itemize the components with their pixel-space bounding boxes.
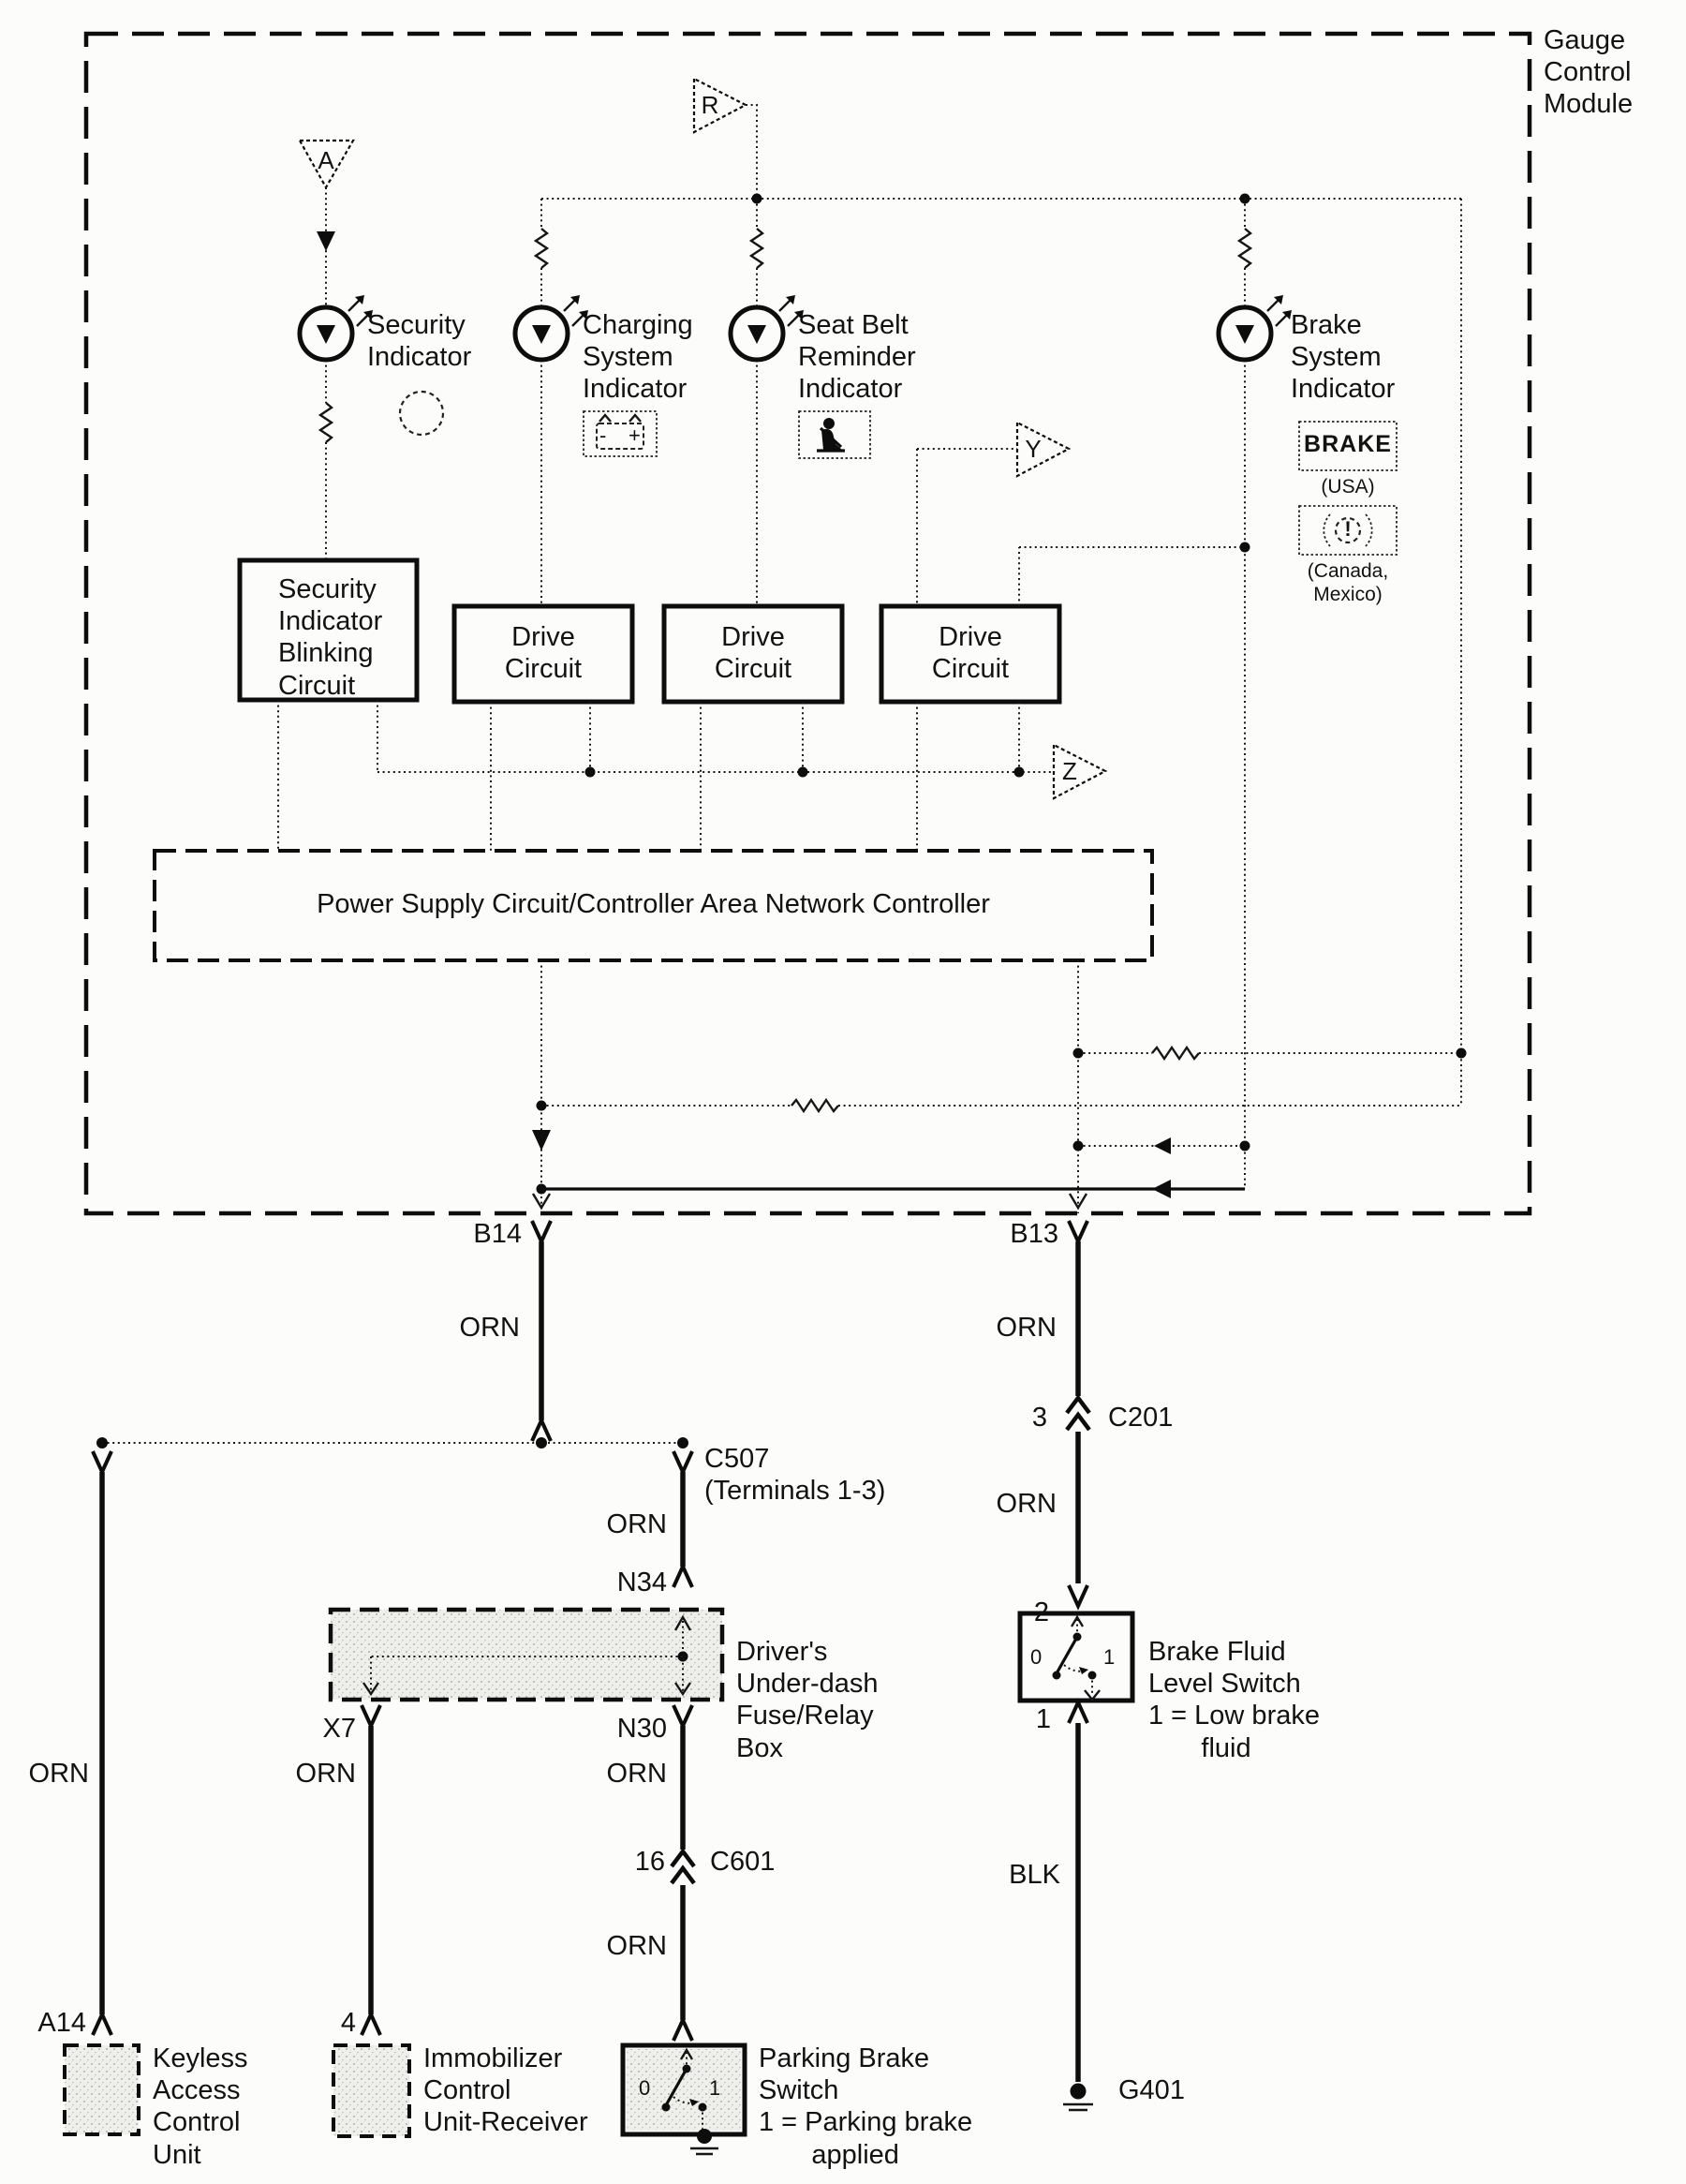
brake-box-text: BRAKE: [1299, 431, 1397, 459]
drive-circuit-2-label: Drive Circuit: [664, 621, 842, 685]
pin-1-label: 1: [991, 1703, 1051, 1735]
triangle-y-label: Y: [1022, 435, 1044, 464]
wire-color-orn: ORN: [417, 1312, 520, 1344]
connector-fork-icon: [93, 1451, 111, 1472]
inline-connector-icon: [1067, 1398, 1089, 1413]
ground-dot-icon: [1071, 2084, 1087, 2100]
switch-lever: [1057, 1637, 1077, 1673]
wire-color-orn: ORN: [954, 1312, 1057, 1344]
inline-connector-icon: [1067, 1415, 1089, 1430]
security-lamp-symbol-icon: [400, 392, 443, 435]
resistor-icon: [1152, 1047, 1199, 1059]
inline-connector-icon: [672, 1868, 694, 1883]
parking-switch-0-label: 0: [639, 2076, 650, 2101]
canada-mexico-label: (Canada, Mexico): [1290, 560, 1406, 607]
connector-c201-label: C201: [1108, 1402, 1173, 1434]
inline-connector-icon: [672, 1851, 694, 1866]
pin-n34-label: N34: [564, 1567, 667, 1598]
pin-x7-label: X7: [253, 1713, 356, 1745]
pin-4-label: 4: [309, 2007, 356, 2039]
pin-16-label: 16: [564, 1846, 665, 1878]
wiring-diagram-page: Gauge Control Module A R Y Z Security In…: [0, 0, 1686, 2184]
b13-external-wire: [1067, 1221, 1089, 1606]
connector-fork-icon: [673, 1705, 692, 1726]
connector-fork-icon: [673, 2020, 692, 2041]
resistor-icon: [536, 229, 547, 268]
c507-wire: [673, 1451, 692, 1587]
triangle-a-label: A: [315, 146, 337, 175]
exit-arrow-icon: [1070, 1194, 1087, 1208]
brake-fluid-switch-label: Brake Fluid Level Switch 1 = Low brake f…: [1148, 1636, 1320, 1764]
connector-fork-icon: [1069, 1221, 1087, 1241]
ground-hatch-icon: [1063, 2104, 1093, 2110]
pin-2-label: 2: [991, 1597, 1049, 1628]
fluid-switch-1-label: 1: [1103, 1645, 1115, 1670]
immobilizer-unit-box: [333, 2045, 409, 2136]
seat-belt-led-icon: [731, 295, 804, 360]
wire-color-orn: ORN: [937, 1488, 1057, 1520]
x7-wire: [362, 1705, 380, 2035]
security-led-icon: [300, 295, 373, 360]
wire-color-orn: ORN: [564, 1508, 667, 1540]
parking-brake-switch-label: Parking Brake Switch 1 = Parking brake a…: [759, 2043, 972, 2171]
drive-circuit-1-label: Drive Circuit: [454, 621, 632, 685]
resistor-icon: [791, 1100, 838, 1111]
security-indicator-branch: [317, 187, 335, 560]
connector-fork-icon: [1069, 1702, 1087, 1723]
connector-fork-icon: [362, 1705, 380, 1726]
z-bus-wires: [278, 700, 1054, 851]
resistor-icon: [1239, 229, 1250, 268]
connector-c601-label: C601: [710, 1846, 775, 1878]
exit-arrow-icon: [533, 1194, 550, 1208]
usa-label: (USA): [1299, 476, 1397, 499]
battery-plus-label: +: [629, 423, 641, 448]
wire-color-orn: ORN: [253, 1758, 356, 1790]
charging-indicator-label: Charging System Indicator: [583, 309, 693, 406]
ground-g401-label: G401: [1118, 2074, 1185, 2106]
g401-ground-wire: [1063, 1702, 1093, 2110]
battery-minus-label: -: [599, 423, 606, 448]
connector-fork-icon: [362, 2014, 380, 2035]
ground-dot-icon: [697, 2129, 712, 2144]
drive-circuit-3-label: Drive Circuit: [881, 621, 1059, 685]
pin-b13-label: B13: [954, 1218, 1058, 1250]
connector-fork-icon: [93, 2014, 111, 2035]
triangle-r-label: R: [699, 91, 721, 120]
fuse-relay-box-label: Driver's Under-dash Fuse/Relay Box: [736, 1636, 879, 1764]
pin-b14-label: B14: [417, 1218, 522, 1250]
connector-fork-icon: [532, 1221, 551, 1241]
resistor-icon: [320, 403, 332, 442]
parking-switch-1-label: 1: [709, 2076, 720, 2101]
power-supply-label: Power Supply Circuit/Controller Area Net…: [155, 888, 1152, 920]
under-dash-fuse-relay-box: [331, 1610, 722, 1700]
gauge-control-module-title: Gauge Control Module: [1544, 24, 1684, 121]
n30-wire: [672, 1705, 694, 2041]
wire-color-blk: BLK: [955, 1859, 1060, 1891]
keyless-access-control-unit-box: [65, 2045, 139, 2134]
fluid-switch-0-label: 0: [1030, 1645, 1042, 1670]
immobilizer-unit-label: Immobilizer Control Unit-Receiver: [423, 2043, 588, 2139]
seat-belt-indicator-label: Seat Belt Reminder Indicator: [798, 309, 916, 406]
triangle-z-label: Z: [1058, 757, 1081, 786]
brake-led-icon: [1219, 295, 1292, 360]
charging-led-icon: [515, 295, 588, 360]
battery-icon: [584, 411, 657, 456]
brake-indicator-label: Brake System Indicator: [1291, 309, 1395, 406]
wire-color-orn: ORN: [0, 1758, 89, 1790]
indicator-power-bus: [541, 194, 1461, 204]
diode-arrow-icon: [532, 1130, 551, 1151]
connector-fork-icon: [673, 1451, 692, 1472]
ground-hatch-icon: [690, 2148, 718, 2154]
b14-external-wire: [532, 1221, 551, 1441]
charging-indicator-branch: [536, 199, 547, 606]
resistor-icon: [751, 229, 762, 268]
y-feed-wires: [917, 449, 1245, 606]
pin-a14-label: A14: [19, 2007, 86, 2039]
pin-3-label: 3: [991, 1402, 1047, 1434]
wire-color-orn: ORN: [564, 1930, 667, 1962]
connector-fork-icon: [1069, 1585, 1087, 1606]
left-arrow-icon: [1152, 1180, 1171, 1198]
diode-arrow-icon: [317, 231, 335, 251]
connector-fork-icon: [673, 1567, 692, 1587]
brake-exclamation-text: !: [1342, 517, 1354, 542]
seat-belt-icon: [799, 411, 870, 458]
a14-wire: [93, 1451, 111, 2035]
left-arrow-icon: [1154, 1137, 1171, 1154]
pin-n30-label: N30: [564, 1713, 667, 1745]
seat-belt-indicator-branch: [751, 199, 762, 606]
connector-c507-label: C507 (Terminals 1-3): [704, 1443, 885, 1507]
security-indicator-label: Security Indicator: [367, 309, 471, 373]
wire-color-orn: ORN: [564, 1758, 667, 1790]
security-blinking-circuit-label: Security Indicator Blinking Circuit: [278, 573, 382, 702]
c507-splice-wire: [96, 1437, 688, 1449]
keyless-unit-label: Keyless Access Control Unit: [153, 2043, 248, 2171]
